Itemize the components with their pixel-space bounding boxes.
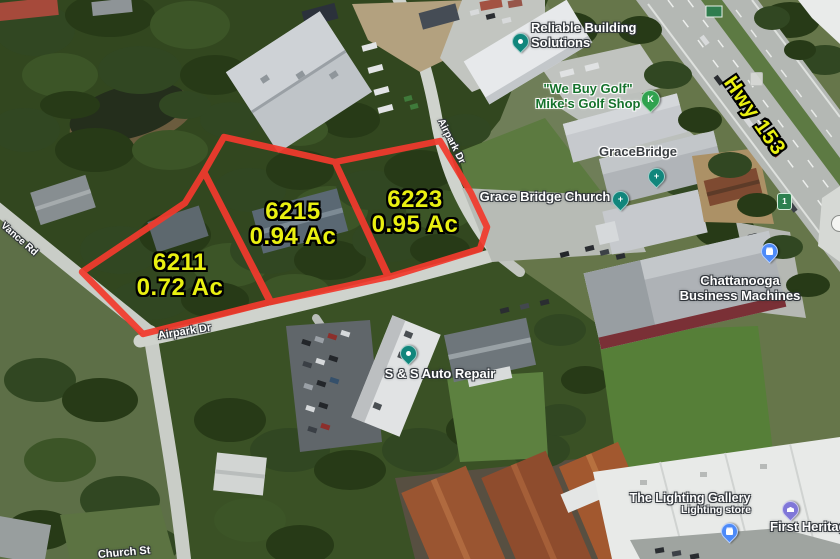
parcel-number: 6215 xyxy=(250,199,337,224)
golf-k-icon: K xyxy=(642,91,659,108)
parcel-label-6223: 6223 0.95 Ac xyxy=(372,187,459,237)
parcel-area: 0.94 Ac xyxy=(250,224,337,249)
poi-line: Mike's Golf Shop xyxy=(536,97,641,112)
bank-icon xyxy=(783,502,798,517)
poi-label-reliable-building-solutions[interactable]: Reliable Building Solutions xyxy=(531,21,636,50)
cross-icon: + xyxy=(613,192,628,207)
poi-label-first-heritage[interactable]: First Heritage xyxy=(770,520,840,535)
poi-label-the-lighting-gallery[interactable]: The Lighting Gallery xyxy=(630,491,751,505)
poi-line: Chattanooga xyxy=(680,274,801,289)
green-route-shield-icon: 1 xyxy=(777,193,792,210)
poi-label-mikes-golf-shop[interactable]: "We Buy Golf" Mike's Golf Shop xyxy=(536,82,641,111)
parcel-area: 0.95 Ac xyxy=(372,212,459,237)
poi-label-gracebridge[interactable]: GraceBridge xyxy=(599,145,677,160)
parcel-label-6215: 6215 0.94 Ac xyxy=(250,199,337,249)
parcel-number: 6223 xyxy=(372,187,459,212)
poi-label-ss-auto-repair[interactable]: S & S Auto Repair xyxy=(385,367,496,382)
poi-label-lighting-store: Lighting store xyxy=(681,505,751,517)
poi-line: "We Buy Golf" xyxy=(536,82,641,97)
poi-line: Business Machines xyxy=(680,289,801,304)
dot-icon xyxy=(401,346,416,361)
poi-line: Solutions xyxy=(531,36,636,51)
parcel-area: 0.72 Ac xyxy=(137,275,224,300)
cross-icon: + xyxy=(649,169,664,184)
dot-icon xyxy=(513,34,528,49)
parcel-label-6211: 6211 0.72 Ac xyxy=(137,250,224,300)
poi-line: Reliable Building xyxy=(531,21,636,36)
poi-label-chattanooga-business-machines[interactable]: Chattanooga Business Machines xyxy=(680,274,801,303)
shopping-bag-icon xyxy=(722,524,737,539)
briefcase-icon xyxy=(762,244,777,259)
poi-label-grace-bridge-church[interactable]: Grace Bridge Church xyxy=(480,190,611,205)
satellite-parcel-map: 6211 0.72 Ac 6215 0.94 Ac 6223 0.95 Ac H… xyxy=(0,0,840,559)
parcel-number: 6211 xyxy=(137,250,224,275)
highway-marker-icon xyxy=(750,72,763,86)
